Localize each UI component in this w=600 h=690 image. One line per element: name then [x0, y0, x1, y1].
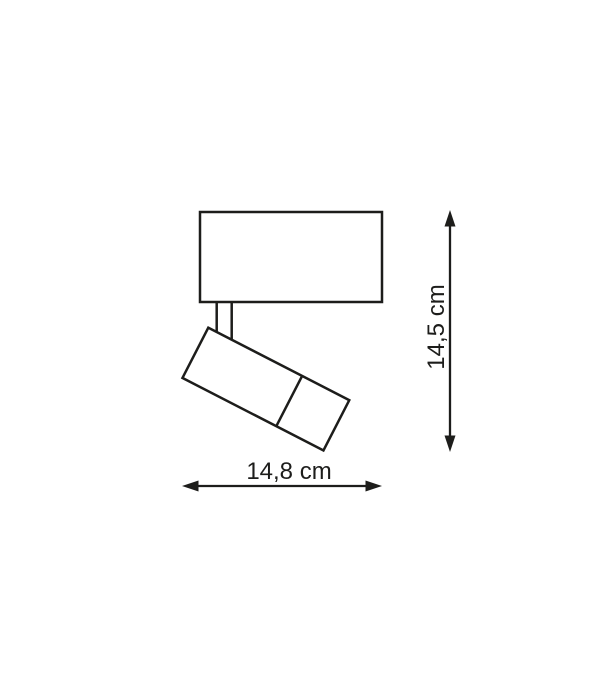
height-dimension-label: 14,5 cm	[423, 284, 450, 369]
width-dimension: 14,8 cm	[182, 458, 382, 492]
arrow-down-icon	[445, 436, 456, 453]
spotlight-head-body	[182, 328, 349, 451]
mounting-base	[200, 212, 382, 302]
arrow-right-icon	[366, 481, 383, 492]
width-dimension-label: 14,8 cm	[246, 458, 331, 485]
product-dimension-diagram: 14,5 cm 14,8 cm	[0, 0, 600, 690]
height-dimension: 14,5 cm	[423, 210, 456, 452]
spotlight-diagram-svg: 14,5 cm 14,8 cm	[0, 0, 600, 690]
arrow-up-icon	[445, 210, 456, 227]
arrow-left-icon	[182, 481, 199, 492]
spotlight-head	[182, 328, 349, 451]
spotlight-drawing	[182, 212, 382, 450]
